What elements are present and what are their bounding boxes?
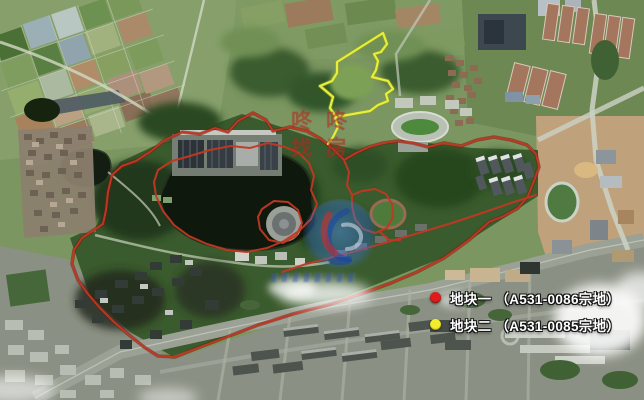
map-legend: 地块一 （A531-0086宗地） 地块二 （A531-0085宗地） <box>430 284 620 338</box>
legend-item-parcel-2: 地块二 （A531-0085宗地） <box>430 311 620 338</box>
stadium-track <box>392 112 448 142</box>
parcel-1-label: 地块一 （A531-0086宗地） <box>450 288 620 308</box>
logo-watermark-glyph <box>303 199 377 273</box>
logo-watermark <box>303 199 377 273</box>
village-left <box>18 126 96 238</box>
parcel-2-marker-dot <box>430 319 441 330</box>
satellite-map: 咚咚 找房 地块一 （A531-0086宗地） 地块二 （A531-0085宗地… <box>0 0 644 400</box>
parcel-2-label: 地块二 （A531-0085宗地） <box>450 315 620 335</box>
blue-watermark-smudge <box>270 273 357 282</box>
pond-far-left <box>24 98 60 122</box>
water-treatment-plant <box>172 130 282 176</box>
parcel-1-marker-dot <box>430 292 441 303</box>
legend-item-parcel-1: 地块一 （A531-0086宗地） <box>430 284 620 311</box>
green-field <box>6 269 50 306</box>
